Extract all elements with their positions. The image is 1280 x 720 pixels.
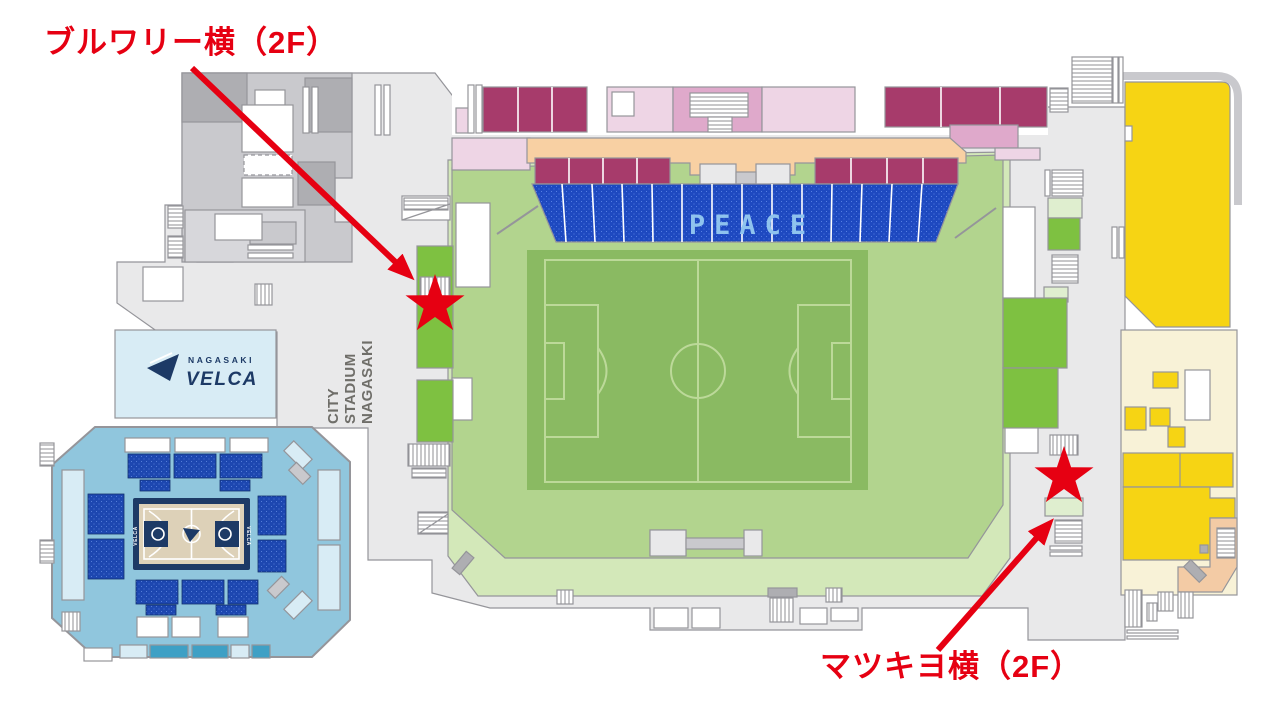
site-logo-stadium: STADIUM — [342, 353, 359, 424]
escalator-icon — [1045, 170, 1050, 196]
stairs-icon — [557, 590, 573, 604]
stadium-seats-blue: PEACE — [532, 184, 958, 242]
arena-south-block — [150, 645, 188, 658]
escalator-icon — [303, 87, 309, 133]
velca-logo-main: VELCA — [186, 369, 258, 390]
grand-stairs-southeast — [1125, 590, 1193, 639]
escalator-icon — [468, 85, 474, 133]
stairs-icon — [168, 236, 183, 258]
yellow-building-main — [1125, 82, 1230, 327]
site-logo-city: CITY — [325, 388, 342, 424]
stairs-icon — [770, 598, 793, 622]
stairs-icon — [690, 93, 748, 117]
shop-block-green — [1003, 368, 1058, 428]
court-side-label: VELCA — [133, 526, 139, 545]
stairs-icon — [1217, 528, 1235, 558]
stairs-icon — [168, 206, 183, 228]
stairs-icon — [1052, 255, 1078, 283]
bench — [248, 245, 293, 250]
bowl-room — [1003, 207, 1035, 300]
soccer-pitch — [527, 250, 868, 490]
peace-stadium: PEACE — [448, 80, 1048, 596]
stairs-icon — [40, 540, 54, 563]
shop-block-green — [417, 380, 453, 442]
stand-text-peace: PEACE — [689, 210, 815, 241]
room — [143, 267, 183, 301]
stadium-band-pink — [452, 138, 530, 170]
label-brewery-2f: ブルワリー横（2F） — [44, 25, 338, 61]
label-matsukiyo-2f: マツキヨ横（2F） — [820, 649, 1082, 685]
stairs-icon — [408, 444, 450, 466]
stairs-icon — [255, 284, 272, 305]
escalator-icon — [375, 85, 381, 135]
velca-logo-top: NAGASAKI — [188, 355, 254, 365]
bowl-room — [456, 203, 490, 287]
escalator-icon — [1112, 227, 1117, 258]
stairs-icon — [40, 443, 54, 466]
stadium-city-map: PEACE — [0, 0, 1280, 720]
stairs-icon — [826, 588, 842, 602]
shop-yellow — [1168, 427, 1185, 447]
shop-yellow — [1153, 372, 1178, 388]
stairs-icon — [1072, 57, 1112, 103]
site-logo-nagasaki: NAGASAKI — [359, 340, 376, 424]
stairs-icon — [1050, 88, 1068, 112]
yellow-building-bar — [1123, 453, 1233, 487]
map-graphic: PEACE — [0, 0, 1280, 720]
stairs-icon — [62, 612, 80, 631]
shop-block-green — [1048, 218, 1080, 250]
stairs-icon — [1055, 520, 1082, 543]
shop-block-green — [1003, 298, 1067, 368]
basketball-court: VELCA VELCA — [133, 498, 251, 570]
shop-yellow — [1125, 407, 1146, 430]
court-side-label: VELCA — [245, 526, 251, 545]
escalator-icon — [1113, 57, 1118, 103]
shop-yellow — [1150, 408, 1170, 426]
room — [242, 105, 293, 152]
